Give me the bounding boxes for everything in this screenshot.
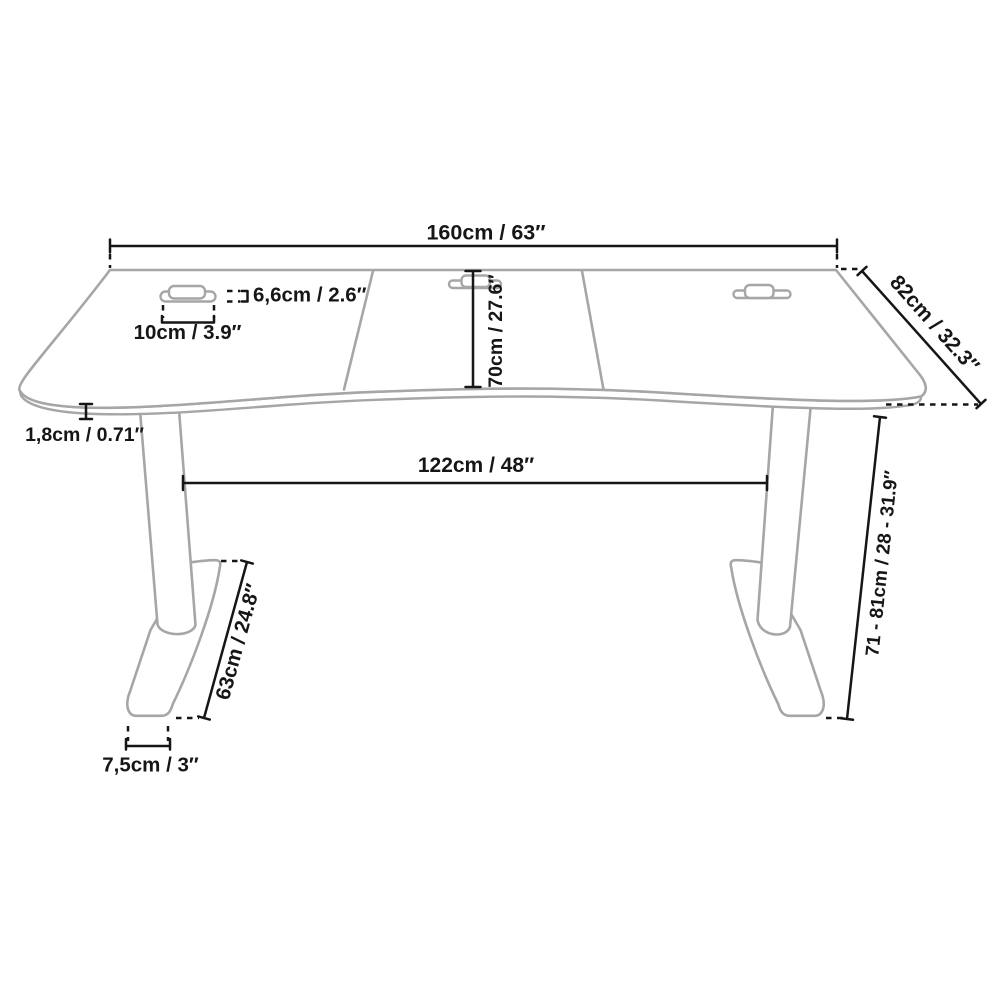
dim-width-label: 160cm / 63″ — [426, 221, 545, 245]
diagram-canvas: 160cm / 63″ 82cm / 32.3″ 6,6cm / 2.6″ 10… — [0, 0, 1000, 1000]
grommet-left-cover — [169, 286, 205, 299]
dim-thickness-label: 1,8cm / 0.71″ — [25, 424, 144, 446]
desk-dimension-diagram: 160cm / 63″ 82cm / 32.3″ 6,6cm / 2.6″ 10… — [0, 0, 1000, 1000]
dim-grommet-width-label: 10cm / 3.9″ — [134, 321, 242, 344]
grommet-right-cover — [745, 285, 774, 298]
dim-leg-span-label: 122cm / 48″ — [418, 454, 534, 477]
dim-foot-width-label: 7,5cm / 3″ — [102, 754, 199, 777]
dim-surface-depth-label: 70cm / 27.6″ — [485, 274, 507, 387]
dim-grommet-cover-label: 6,6cm / 2.6″ — [253, 284, 367, 307]
